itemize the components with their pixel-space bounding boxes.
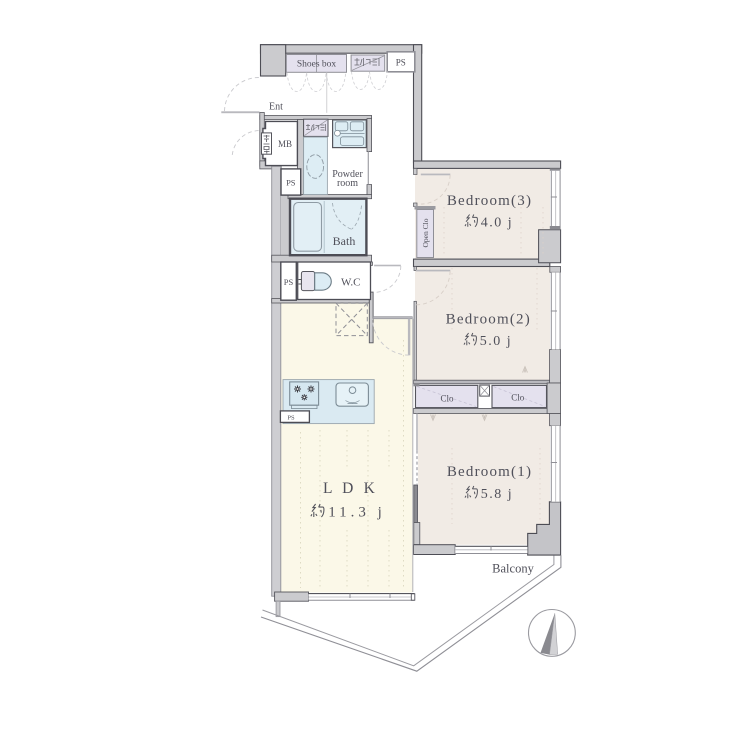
svg-text:Shoes box: Shoes box — [297, 60, 337, 70]
svg-text:L D K: L D K — [323, 480, 378, 497]
svg-text:PS: PS — [287, 415, 295, 422]
svg-text:11.3 j: 11.3 j — [328, 505, 386, 521]
svg-text:4.0 j: 4.0 j — [481, 216, 513, 231]
svg-text:Balcony: Balcony — [492, 562, 534, 576]
svg-text:MB: MB — [278, 139, 292, 149]
svg-text:PS: PS — [286, 178, 296, 188]
svg-text:5.0 j: 5.0 j — [480, 334, 512, 349]
svg-text:Clo: Clo — [440, 394, 454, 404]
svg-text:room: room — [337, 178, 358, 189]
svg-text:Ent: Ent — [269, 102, 283, 113]
svg-text:Bedroom(2): Bedroom(2) — [446, 312, 531, 328]
svg-text:PS: PS — [396, 57, 406, 67]
svg-text:5.8 j: 5.8 j — [481, 487, 513, 502]
svg-text:Bedroom(3): Bedroom(3) — [447, 193, 532, 209]
svg-text:W.C: W.C — [341, 277, 360, 289]
svg-text:Clo: Clo — [511, 393, 525, 403]
svg-text:Bath: Bath — [333, 234, 356, 248]
svg-text:Bedroom(1): Bedroom(1) — [447, 464, 532, 480]
svg-text:Open Clo: Open Clo — [421, 218, 430, 247]
svg-text:PS: PS — [284, 277, 294, 287]
